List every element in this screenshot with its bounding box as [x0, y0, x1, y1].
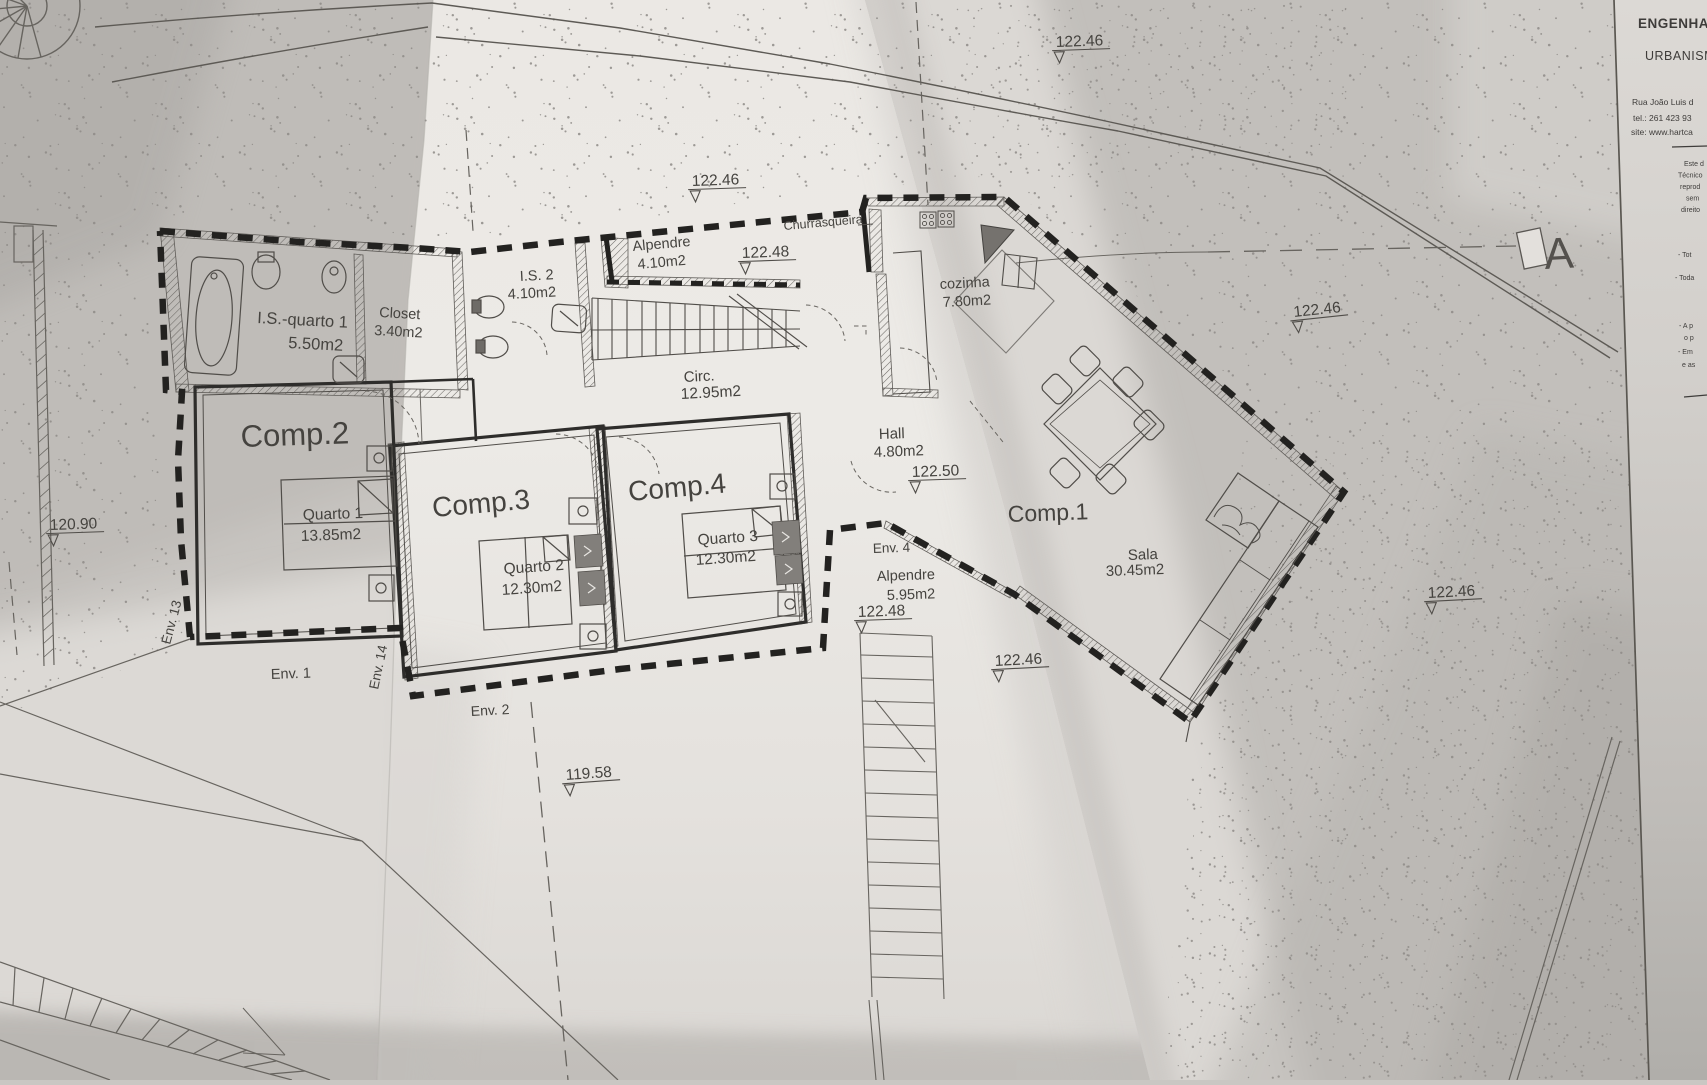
svg-text:- Em: - Em — [1678, 349, 1693, 356]
svg-text:Env. 1: Env. 1 — [271, 666, 312, 683]
svg-text:5.50m2: 5.50m2 — [288, 334, 344, 355]
svg-text:- Tot: - Tot — [1678, 252, 1692, 259]
svg-text:sem: sem — [1686, 196, 1699, 203]
svg-text:Rua João Luis d: Rua João Luis d — [1632, 97, 1694, 107]
svg-text:13.85m2: 13.85m2 — [301, 526, 362, 545]
svg-text:cozinha: cozinha — [939, 274, 991, 293]
svg-text:I.S. 2: I.S. 2 — [519, 267, 554, 285]
svg-text:122.48: 122.48 — [742, 243, 790, 262]
svg-text:122.46: 122.46 — [692, 171, 740, 190]
svg-text:122.50: 122.50 — [912, 462, 960, 481]
svg-text:ENGENHAR: ENGENHAR — [1638, 16, 1707, 31]
svg-text:URBANISM: URBANISM — [1645, 49, 1707, 63]
svg-text:Este d: Este d — [1684, 161, 1704, 168]
svg-text:122.48: 122.48 — [858, 602, 906, 621]
svg-text:Hall: Hall — [879, 425, 905, 443]
svg-text:e as: e as — [1682, 362, 1696, 369]
svg-text:- Toda: - Toda — [1675, 275, 1694, 282]
svg-text:12.95m2: 12.95m2 — [680, 383, 741, 403]
svg-text:site: www.hartca: site: www.hartca — [1631, 127, 1693, 137]
svg-text:tel.: 261 423 93: tel.: 261 423 93 — [1633, 113, 1692, 123]
svg-text:30.45m2: 30.45m2 — [1106, 561, 1165, 580]
svg-text:Env. 4: Env. 4 — [873, 540, 911, 556]
svg-text:4.10m2: 4.10m2 — [507, 284, 556, 303]
svg-text:120.90: 120.90 — [50, 515, 98, 534]
svg-text:Alpendre: Alpendre — [877, 567, 936, 585]
svg-text:direito: direito — [1681, 207, 1700, 214]
svg-text:o p: o p — [1684, 335, 1694, 342]
svg-text:7.80m2: 7.80m2 — [942, 292, 991, 311]
svg-text:122.46: 122.46 — [1056, 32, 1104, 51]
svg-text:3.40m2: 3.40m2 — [374, 323, 423, 342]
svg-text:Comp.1: Comp.1 — [1007, 498, 1088, 527]
svg-text:Quarto 1: Quarto 1 — [303, 505, 364, 524]
svg-text:Técnico: Técnico — [1678, 173, 1703, 180]
svg-text:reprod: reprod — [1680, 184, 1700, 191]
svg-text:A: A — [1543, 228, 1576, 279]
svg-text:Comp.2: Comp.2 — [240, 415, 350, 454]
svg-text:- A p: - A p — [1679, 323, 1693, 330]
svg-text:4.80m2: 4.80m2 — [874, 442, 925, 461]
svg-text:Closet: Closet — [379, 305, 421, 323]
svg-text:5.95m2: 5.95m2 — [887, 586, 936, 604]
svg-text:Env. 2: Env. 2 — [470, 701, 510, 719]
svg-text:Circ.: Circ. — [683, 367, 715, 386]
